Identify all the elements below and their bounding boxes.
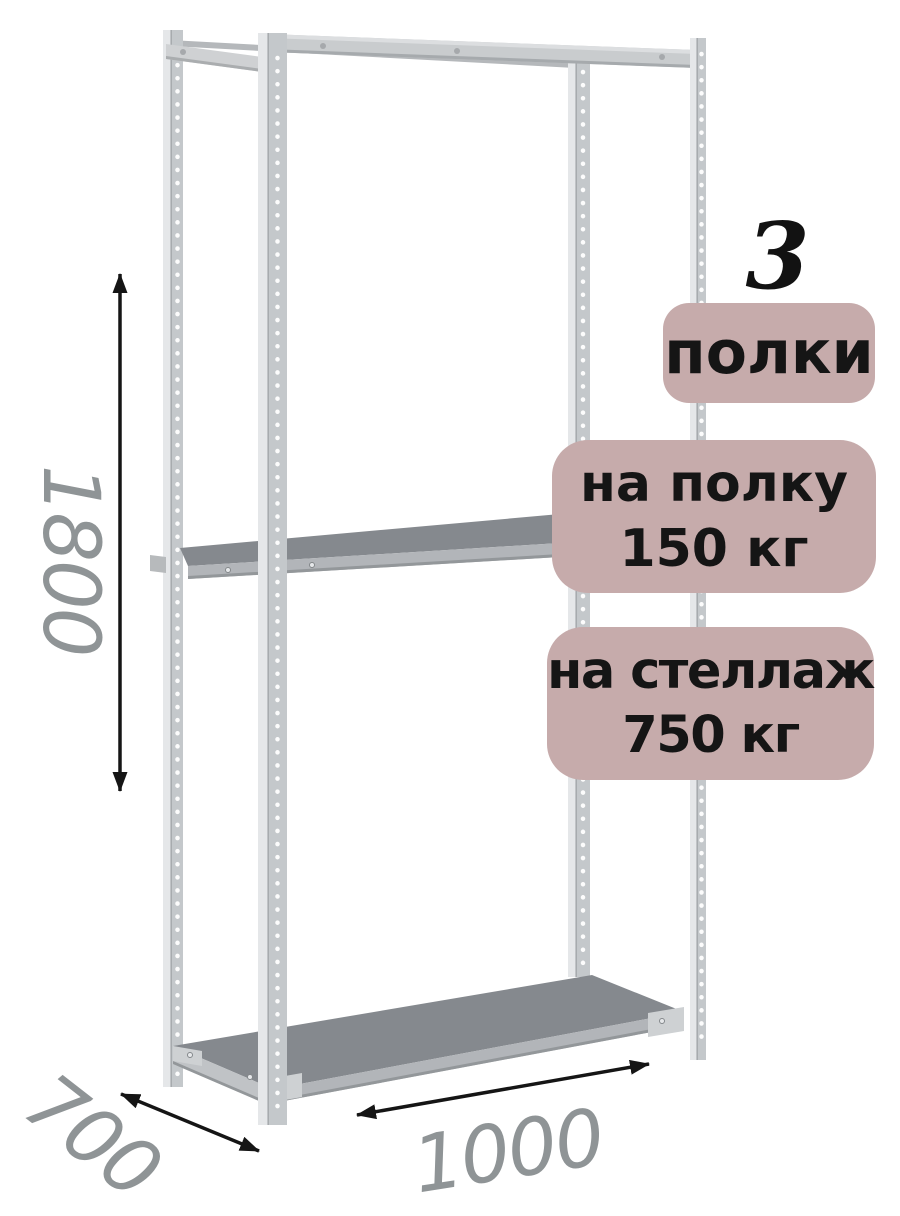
rack-bottom-shelf (173, 975, 684, 1107)
rack-load-badge: на стеллаж 750 кг (547, 627, 874, 780)
shelf-load-line1: на полку (580, 452, 848, 517)
shelf-load-line2: 150 кг (619, 517, 808, 582)
rack-post-front-left (258, 33, 287, 1125)
rack-illustration (0, 0, 900, 1200)
shelf-count-badge-label: полки (664, 316, 873, 391)
rack-load-line2: 750 кг (622, 704, 798, 768)
shelf-count-badge: полки (663, 303, 875, 403)
shelf-load-badge: на полку 150 кг (552, 440, 876, 593)
shelf-count-value: 3 (720, 206, 835, 306)
rack-load-line1: на стеллаж (547, 640, 874, 704)
height-dimension-label: 1800 (25, 465, 115, 656)
product-image: 3 полки на полку 150 кг на стеллаж 750 к… (0, 0, 900, 1200)
rack-top-frame (166, 34, 697, 72)
rack-middle-shelf (150, 514, 560, 579)
